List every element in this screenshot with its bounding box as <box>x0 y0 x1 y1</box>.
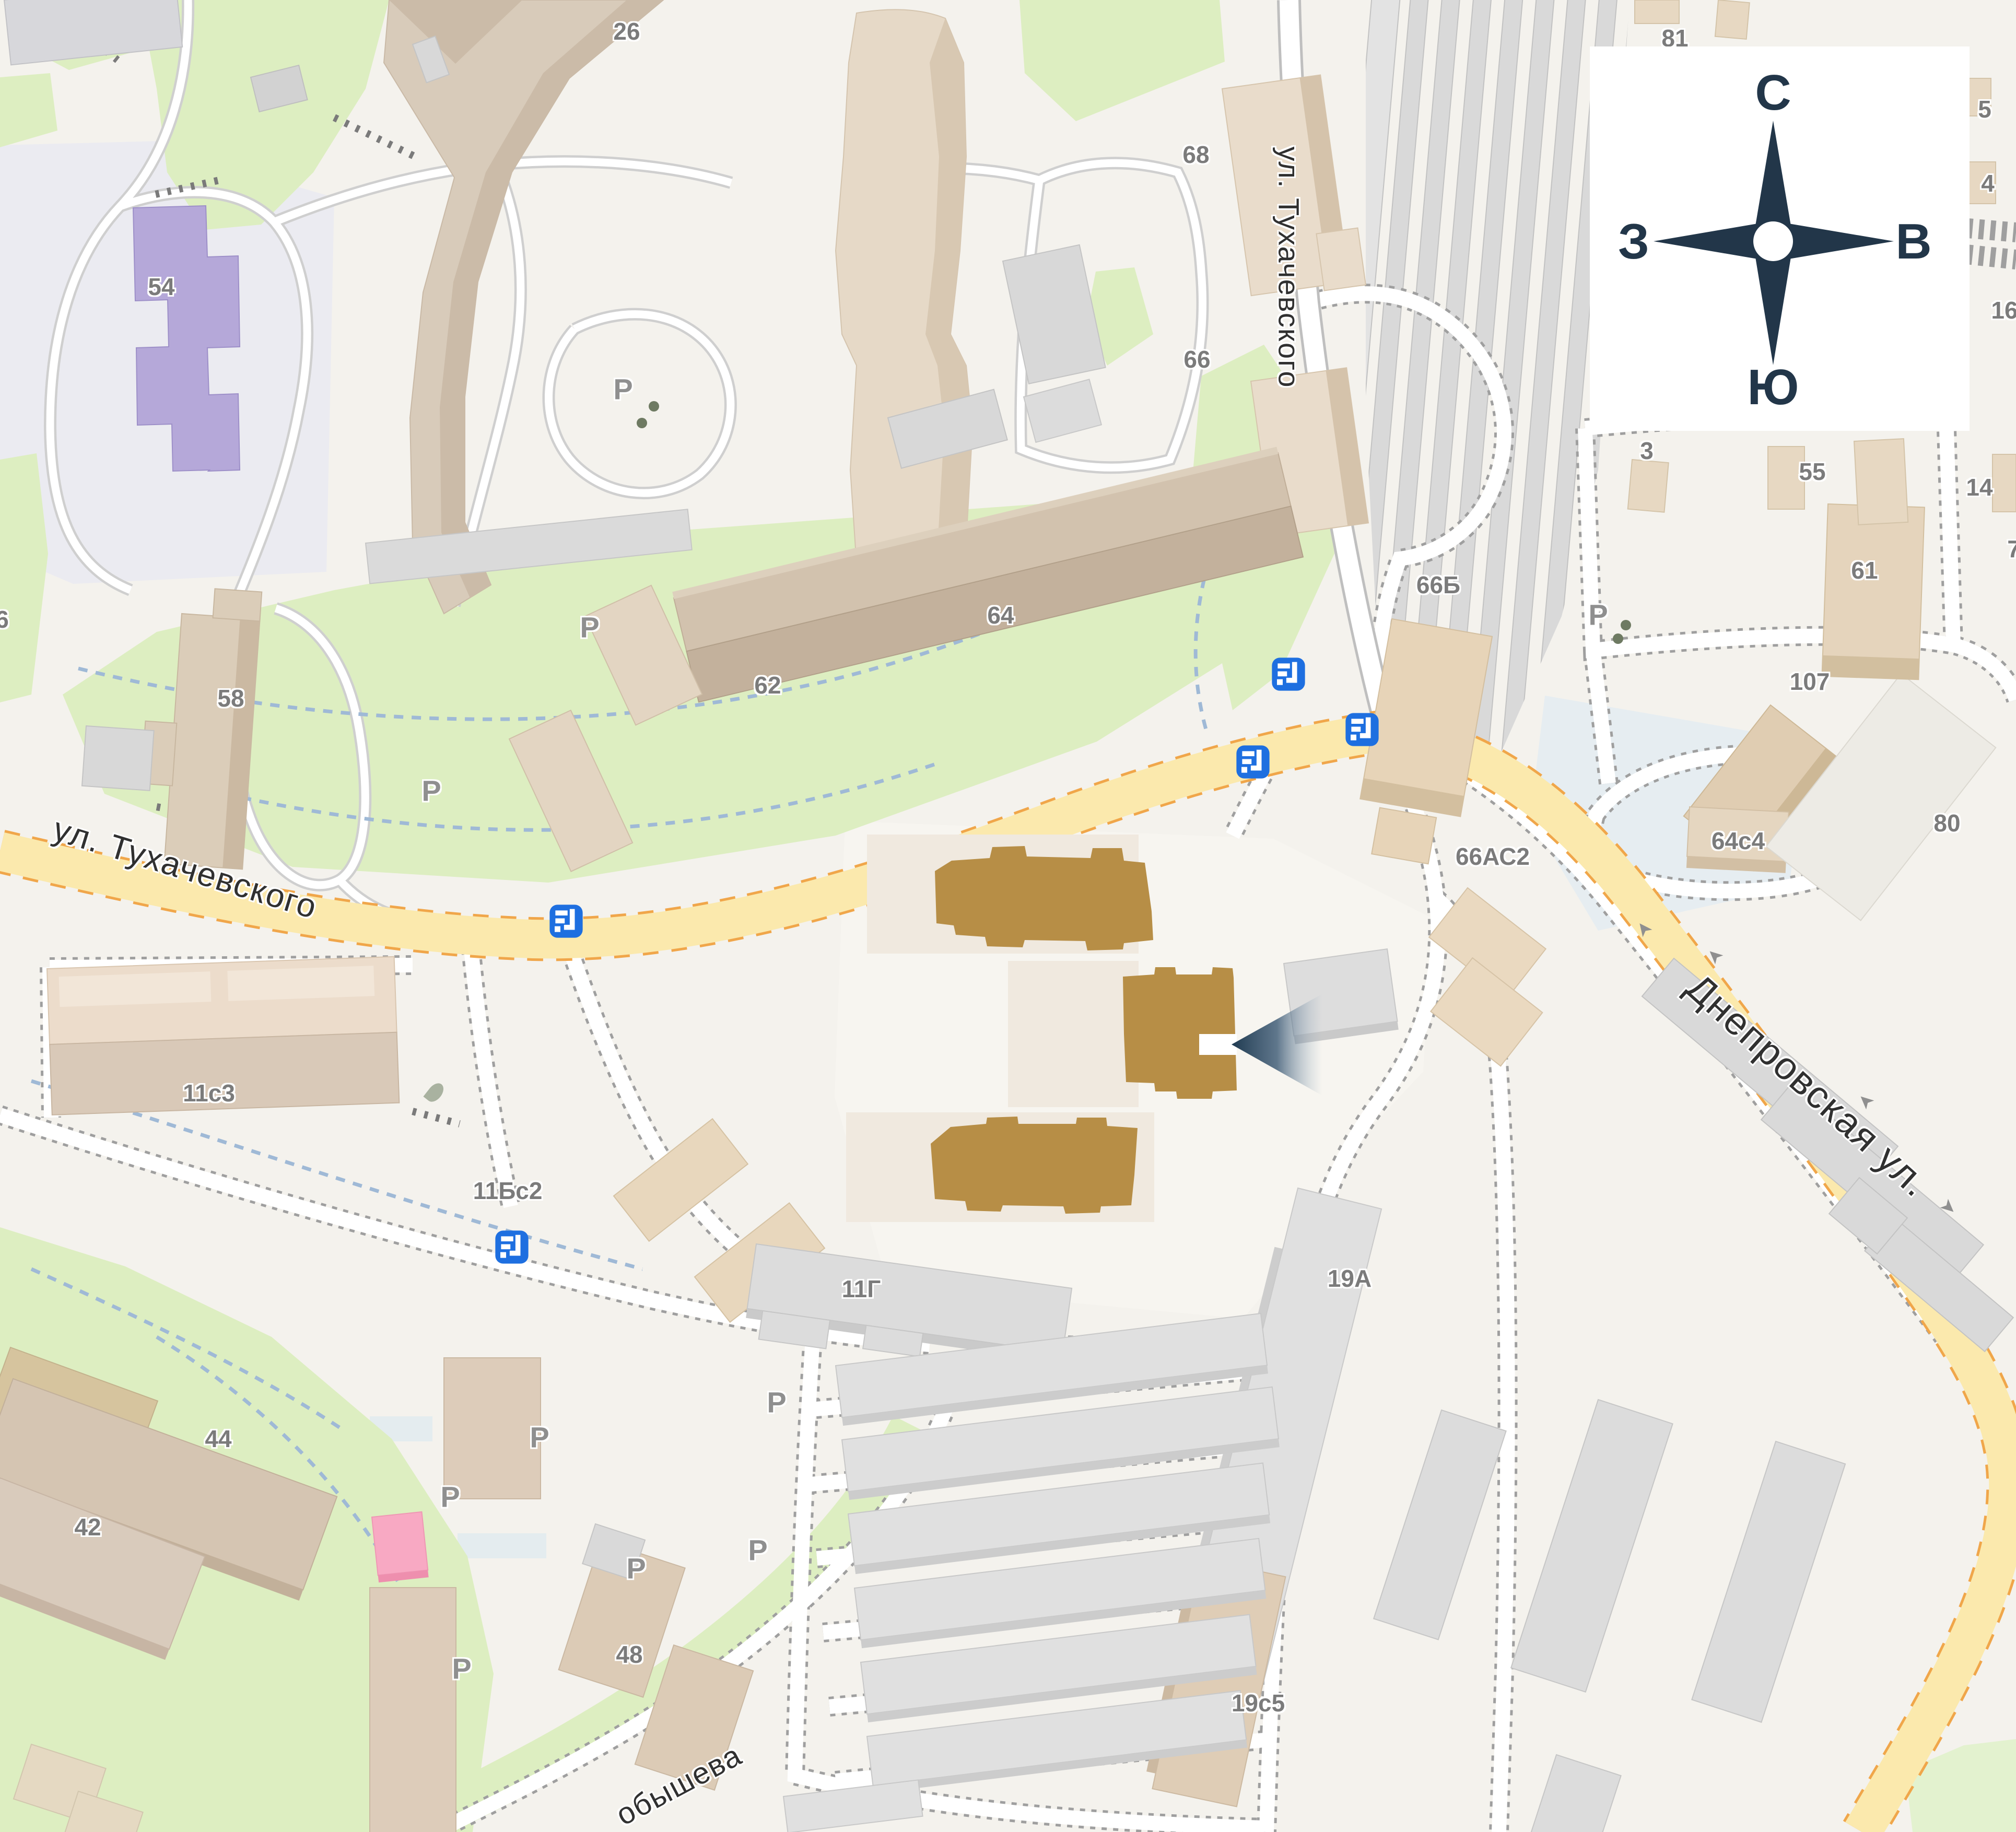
address-label: 3 <box>1640 437 1654 465</box>
address-label: 6 <box>0 605 9 633</box>
bus-stop-icon[interactable] <box>1236 745 1270 779</box>
address-label: 64с4 <box>1712 827 1765 855</box>
parking-icon[interactable]: P <box>530 1420 549 1454</box>
street-name-label: ул. Тухачевского <box>1272 147 1306 389</box>
street-name-label: Днепровская ул. <box>1678 965 1939 1205</box>
one-way-arrow-icon: ➤ <box>1702 943 1728 969</box>
address-label: 61 <box>1851 556 1878 584</box>
address-label: 4 <box>1981 169 1995 197</box>
address-label: 64 <box>987 601 1014 629</box>
address-label: 19А <box>1328 1264 1372 1293</box>
parking-icon[interactable]: P <box>580 610 599 644</box>
address-label: 55 <box>1799 457 1825 486</box>
map-canvas[interactable]: 2668665464625866Б66АС210764с480615531481… <box>0 0 2016 1832</box>
address-label: 5 <box>1978 95 1991 123</box>
one-way-arrow-icon: ➤ <box>1630 916 1657 942</box>
address-label: 80 <box>1933 809 1960 837</box>
address-label: 66Б <box>1416 571 1460 599</box>
bus-stop-icon[interactable] <box>1345 712 1379 747</box>
tree-dot-icon <box>1621 620 1631 630</box>
address-label: 54 <box>148 273 174 301</box>
tree-dot-icon <box>649 401 659 412</box>
compass-south-label: Ю <box>1748 359 1799 416</box>
address-label: 58 <box>217 684 244 712</box>
address-label: 44 <box>205 1425 231 1453</box>
parking-icon[interactable]: P <box>421 774 441 808</box>
one-way-arrow-icon: ➤ <box>1936 1193 1962 1220</box>
compass-west-label: З <box>1618 213 1649 271</box>
address-label: 11Бс2 <box>473 1177 543 1205</box>
parking-icon[interactable]: P <box>748 1533 767 1567</box>
parking-icon[interactable]: P <box>613 372 632 406</box>
address-label: 68 <box>1182 140 1209 169</box>
parking-icon[interactable]: P <box>452 1652 471 1686</box>
compass-east-label: В <box>1895 213 1931 271</box>
parking-icon[interactable]: P <box>440 1480 460 1514</box>
address-label: 62 <box>754 671 781 699</box>
address-label: 48 <box>616 1640 642 1669</box>
address-label: 42 <box>74 1513 101 1541</box>
tree-dot-icon <box>637 418 647 428</box>
address-label: 19с5 <box>1232 1689 1285 1717</box>
street-name-label: ул. Тухачевского <box>49 809 322 926</box>
compass-rose-icon: С Ю З В <box>1590 46 1970 431</box>
parking-icon[interactable]: P <box>626 1552 646 1586</box>
compass-north-label: С <box>1755 64 1791 122</box>
address-label: 16 <box>1991 296 2016 324</box>
address-label: 107 <box>1790 667 1830 696</box>
bus-stop-icon[interactable] <box>549 904 583 938</box>
street-name-label: обышева <box>610 1737 747 1832</box>
bus-stop-icon[interactable] <box>495 1230 529 1264</box>
address-label: 11с3 <box>183 1079 235 1107</box>
tree-dot-icon <box>1613 633 1623 644</box>
bus-stop-icon[interactable] <box>1271 657 1306 691</box>
address-label: 66АС2 <box>1456 842 1530 871</box>
parking-icon[interactable]: P <box>767 1385 786 1419</box>
address-label: 66 <box>1183 345 1210 373</box>
address-label: 7 <box>2007 535 2016 563</box>
address-label: 14 <box>1966 473 1992 501</box>
parking-icon[interactable]: P <box>1588 598 1608 632</box>
address-label: 11Г <box>842 1275 881 1303</box>
address-label: 26 <box>613 17 640 45</box>
